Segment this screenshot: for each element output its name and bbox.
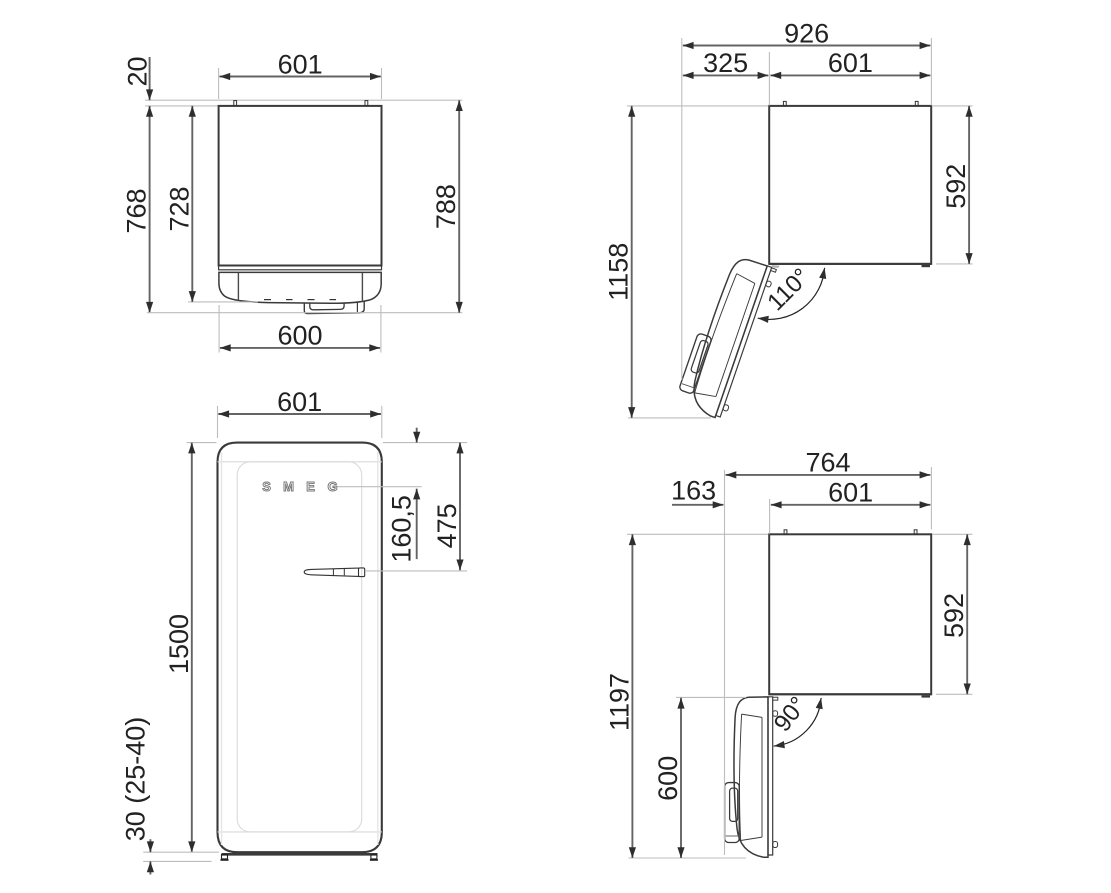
svg-text:160,5: 160,5	[387, 495, 417, 563]
svg-text:601: 601	[828, 478, 873, 508]
svg-text:592: 592	[939, 593, 969, 638]
svg-text:1500: 1500	[164, 614, 194, 674]
svg-text:E: E	[306, 479, 315, 494]
svg-text:M: M	[283, 479, 294, 494]
svg-text:600: 600	[653, 756, 683, 801]
svg-text:926: 926	[784, 18, 829, 48]
svg-text:1158: 1158	[604, 243, 634, 301]
svg-text:163: 163	[671, 475, 716, 505]
svg-text:601: 601	[828, 48, 873, 78]
svg-text:728: 728	[164, 186, 194, 231]
svg-text:G: G	[328, 479, 338, 494]
svg-text:30 (25-40): 30 (25-40)	[120, 717, 150, 842]
svg-text:S: S	[262, 479, 271, 494]
svg-text:20: 20	[122, 56, 152, 86]
svg-text:325: 325	[703, 48, 748, 78]
svg-text:601: 601	[277, 387, 322, 417]
svg-text:788: 788	[431, 184, 461, 229]
svg-text:600: 600	[277, 321, 322, 351]
svg-text:764: 764	[805, 448, 850, 478]
svg-text:601: 601	[278, 49, 323, 79]
svg-text:475: 475	[432, 503, 462, 548]
svg-text:1197: 1197	[604, 673, 634, 731]
svg-text:768: 768	[122, 188, 152, 233]
svg-text:592: 592	[941, 164, 971, 209]
